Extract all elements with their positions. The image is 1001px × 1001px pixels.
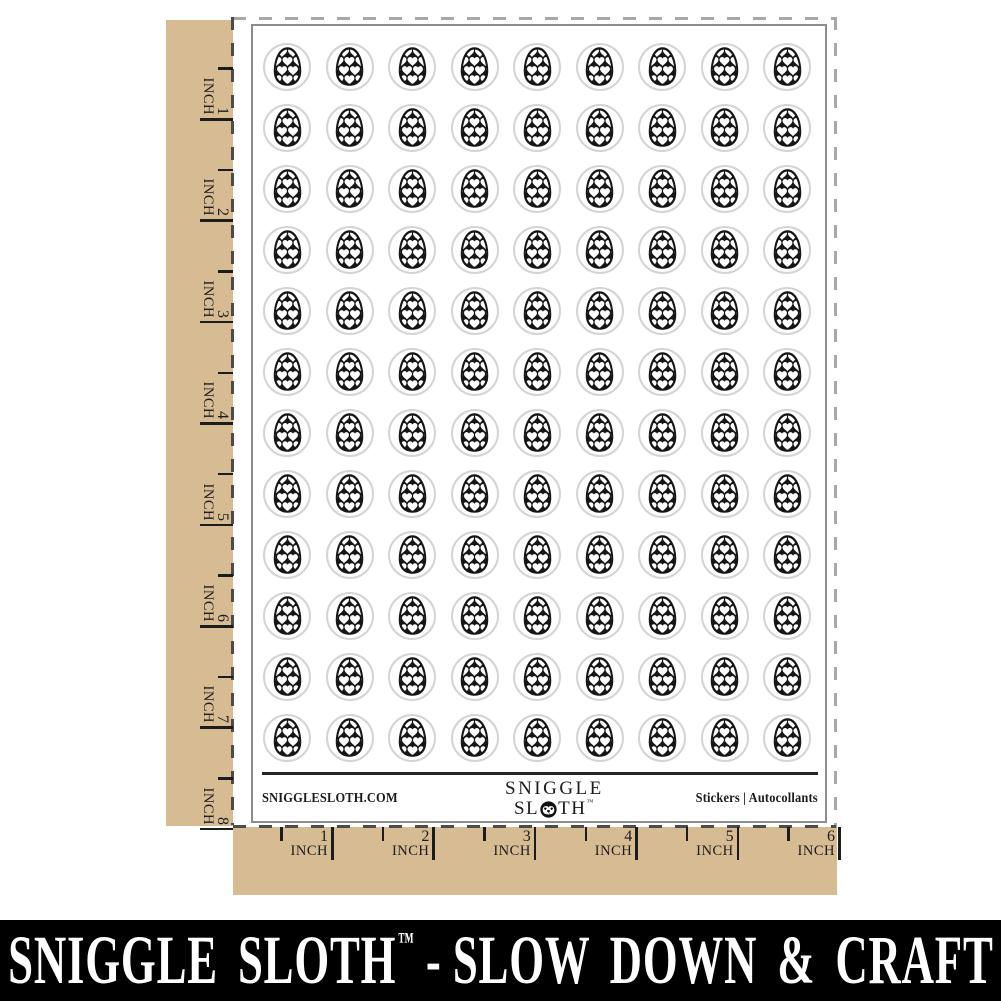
sticker xyxy=(263,470,311,518)
easter-egg-hearts-icon xyxy=(396,107,429,148)
sticker-sheet: SNIGGLESLOTH.COM SNIGGLE SL TH ™ xyxy=(251,24,827,823)
sticker xyxy=(326,43,374,91)
inch-label: 2INCH xyxy=(369,829,429,859)
easter-egg-hearts-icon xyxy=(271,534,304,575)
inch-label: 6INCH xyxy=(775,829,835,859)
easter-egg-hearts-icon xyxy=(646,168,679,209)
sticker xyxy=(451,714,499,762)
sticker xyxy=(451,653,499,701)
easter-egg-hearts-icon xyxy=(521,656,554,697)
sticker xyxy=(576,43,624,91)
sticker xyxy=(513,409,561,457)
easter-egg-hearts-icon xyxy=(521,290,554,331)
ruler-inch-tick xyxy=(200,118,233,121)
easter-egg-hearts-icon xyxy=(333,351,366,392)
inch-unit: INCH xyxy=(268,844,328,859)
easter-egg-hearts-icon xyxy=(771,229,804,270)
sticker xyxy=(638,409,686,457)
easter-egg-hearts-icon xyxy=(396,656,429,697)
inch-number: 4 xyxy=(215,363,230,419)
easter-egg-hearts-icon xyxy=(396,229,429,270)
easter-egg-hearts-icon xyxy=(458,717,491,758)
easter-egg-hearts-icon xyxy=(396,473,429,514)
sticker xyxy=(513,653,561,701)
sticker xyxy=(576,714,624,762)
sticker xyxy=(451,470,499,518)
easter-egg-hearts-icon xyxy=(458,473,491,514)
sticker xyxy=(263,714,311,762)
easter-egg-hearts-icon xyxy=(771,168,804,209)
banner-brand: SNIGGLE SLOTH xyxy=(8,923,396,999)
sticker xyxy=(763,470,811,518)
sticker xyxy=(701,43,749,91)
sticker xyxy=(763,531,811,579)
sticker xyxy=(763,226,811,274)
website-text: SNIGGLESLOTH.COM xyxy=(262,790,398,806)
sticker xyxy=(638,531,686,579)
sticker xyxy=(638,348,686,396)
sticker xyxy=(763,348,811,396)
sticker xyxy=(263,104,311,152)
easter-egg-hearts-icon xyxy=(583,656,616,697)
sticker xyxy=(326,287,374,335)
inch-label: 7INCH xyxy=(200,667,230,723)
sticker xyxy=(513,165,561,213)
sticker xyxy=(576,409,624,457)
sticker xyxy=(638,226,686,274)
sticker xyxy=(326,104,374,152)
easter-egg-hearts-icon xyxy=(771,595,804,636)
banner-trademark: ™ xyxy=(398,928,415,955)
banner-text: SNIGGLE SLOTH™-SLOW DOWN & CRAFT xyxy=(8,926,993,994)
sloth-face-icon xyxy=(540,801,557,818)
inch-label: 1INCH xyxy=(268,829,328,859)
easter-egg-hearts-icon xyxy=(646,412,679,453)
sticker xyxy=(638,653,686,701)
easter-egg-hearts-icon xyxy=(771,473,804,514)
easter-egg-hearts-icon xyxy=(708,412,741,453)
inch-number: 1 xyxy=(215,59,230,115)
sticker xyxy=(763,592,811,640)
easter-egg-hearts-icon xyxy=(771,290,804,331)
easter-egg-hearts-icon xyxy=(396,290,429,331)
sticker xyxy=(451,531,499,579)
sticker xyxy=(388,470,436,518)
logo-line2-post: TH xyxy=(558,799,586,818)
sticker xyxy=(326,226,374,274)
easter-egg-hearts-icon xyxy=(271,290,304,331)
sticker xyxy=(263,531,311,579)
sticker xyxy=(701,531,749,579)
easter-egg-hearts-icon xyxy=(333,656,366,697)
easter-egg-hearts-icon xyxy=(583,168,616,209)
easter-egg-hearts-icon xyxy=(771,46,804,87)
easter-egg-hearts-icon xyxy=(271,656,304,697)
sticker xyxy=(576,165,624,213)
sticker xyxy=(451,165,499,213)
easter-egg-hearts-icon xyxy=(521,473,554,514)
sticker xyxy=(576,592,624,640)
easter-egg-hearts-icon xyxy=(583,595,616,636)
ruler-inch-tick xyxy=(534,827,537,860)
sticker xyxy=(263,348,311,396)
sticker xyxy=(701,653,749,701)
easter-egg-hearts-icon xyxy=(396,534,429,575)
sticker xyxy=(451,226,499,274)
ruler-inch-tick xyxy=(737,827,740,860)
sticker xyxy=(576,348,624,396)
sticker xyxy=(576,531,624,579)
sticker xyxy=(576,226,624,274)
inch-number: 6 xyxy=(775,829,835,844)
easter-egg-hearts-icon xyxy=(521,107,554,148)
sticker xyxy=(388,531,436,579)
easter-egg-hearts-icon xyxy=(583,412,616,453)
inch-unit: INCH xyxy=(200,465,215,521)
sticker xyxy=(701,104,749,152)
sheet-footer: SNIGGLESLOTH.COM SNIGGLE SL TH ™ xyxy=(262,778,818,818)
inch-unit: INCH xyxy=(200,59,215,115)
sticker xyxy=(513,287,561,335)
sticker xyxy=(701,287,749,335)
sticker xyxy=(763,43,811,91)
easter-egg-hearts-icon xyxy=(458,168,491,209)
sticker-grid xyxy=(256,36,819,768)
easter-egg-hearts-icon xyxy=(708,46,741,87)
inch-label: 3INCH xyxy=(471,829,531,859)
easter-egg-hearts-icon xyxy=(271,351,304,392)
easter-egg-hearts-icon xyxy=(271,229,304,270)
sticker xyxy=(326,653,374,701)
easter-egg-hearts-icon xyxy=(708,534,741,575)
inch-unit: INCH xyxy=(200,160,215,216)
inch-number: 5 xyxy=(215,465,230,521)
easter-egg-hearts-icon xyxy=(333,107,366,148)
easter-egg-hearts-icon xyxy=(458,412,491,453)
sticker xyxy=(513,531,561,579)
easter-egg-hearts-icon xyxy=(396,351,429,392)
easter-egg-hearts-icon xyxy=(521,595,554,636)
sticker xyxy=(263,653,311,701)
easter-egg-hearts-icon xyxy=(583,473,616,514)
inch-number: 2 xyxy=(369,829,429,844)
easter-egg-hearts-icon xyxy=(333,290,366,331)
sticker xyxy=(326,165,374,213)
sticker xyxy=(638,43,686,91)
easter-egg-hearts-icon xyxy=(396,595,429,636)
sticker xyxy=(263,592,311,640)
easter-egg-hearts-icon xyxy=(458,351,491,392)
sticker xyxy=(701,348,749,396)
sticker xyxy=(701,470,749,518)
inch-label: 4INCH xyxy=(200,363,230,419)
logo-line2: SL TH ™ xyxy=(505,799,604,818)
sticker xyxy=(388,43,436,91)
stickers-label: Stickers | Autocollants xyxy=(696,790,818,806)
inch-unit: INCH xyxy=(369,844,429,859)
easter-egg-hearts-icon xyxy=(458,107,491,148)
easter-egg-hearts-icon xyxy=(583,290,616,331)
easter-egg-hearts-icon xyxy=(333,46,366,87)
inch-number: 4 xyxy=(572,829,632,844)
ruler-inch-tick xyxy=(200,726,233,729)
easter-egg-hearts-icon xyxy=(521,351,554,392)
inch-label: 3INCH xyxy=(200,262,230,318)
ruler-inch-tick xyxy=(331,827,334,860)
easter-egg-hearts-icon xyxy=(583,717,616,758)
sticker xyxy=(763,409,811,457)
easter-egg-hearts-icon xyxy=(458,534,491,575)
easter-egg-hearts-icon xyxy=(458,656,491,697)
easter-egg-hearts-icon xyxy=(333,595,366,636)
easter-egg-hearts-icon xyxy=(271,473,304,514)
cut-line-right xyxy=(834,17,837,828)
easter-egg-hearts-icon xyxy=(458,229,491,270)
sticker xyxy=(701,409,749,457)
footer-divider xyxy=(262,772,818,775)
banner-separator: - xyxy=(426,923,442,999)
cut-line-left xyxy=(231,17,234,825)
easter-egg-hearts-icon xyxy=(271,412,304,453)
ruler-inch-tick xyxy=(200,524,233,527)
sticker xyxy=(388,348,436,396)
easter-egg-hearts-icon xyxy=(521,534,554,575)
sticker xyxy=(576,287,624,335)
easter-egg-hearts-icon xyxy=(646,656,679,697)
inch-label: 8INCH xyxy=(200,769,230,825)
inch-label: 4INCH xyxy=(572,829,632,859)
sticker xyxy=(513,226,561,274)
easter-egg-hearts-icon xyxy=(708,290,741,331)
easter-egg-hearts-icon xyxy=(771,412,804,453)
inch-unit: INCH xyxy=(674,844,734,859)
inch-number: 6 xyxy=(215,566,230,622)
inch-number: 3 xyxy=(471,829,531,844)
easter-egg-hearts-icon xyxy=(771,717,804,758)
banner-tagline: SLOW DOWN & CRAFT xyxy=(452,923,993,999)
easter-egg-hearts-icon xyxy=(458,595,491,636)
easter-egg-hearts-icon xyxy=(646,717,679,758)
sticker xyxy=(701,714,749,762)
inch-number: 1 xyxy=(268,829,328,844)
sticker xyxy=(638,104,686,152)
sticker xyxy=(451,104,499,152)
inch-label: 6INCH xyxy=(200,566,230,622)
sticker xyxy=(388,287,436,335)
easter-egg-hearts-icon xyxy=(271,717,304,758)
sticker xyxy=(513,348,561,396)
ruler-inch-tick xyxy=(200,828,233,831)
easter-egg-hearts-icon xyxy=(333,717,366,758)
sticker xyxy=(263,287,311,335)
inch-label: 1INCH xyxy=(200,59,230,115)
sticker xyxy=(263,226,311,274)
easter-egg-hearts-icon xyxy=(646,534,679,575)
sticker xyxy=(451,592,499,640)
easter-egg-hearts-icon xyxy=(521,46,554,87)
easter-egg-hearts-icon xyxy=(521,717,554,758)
inch-label: 2INCH xyxy=(200,160,230,216)
inch-unit: INCH xyxy=(200,566,215,622)
easter-egg-hearts-icon xyxy=(583,107,616,148)
sticker xyxy=(638,165,686,213)
easter-egg-hearts-icon xyxy=(771,107,804,148)
logo-trademark: ™ xyxy=(586,799,594,806)
sticker xyxy=(576,653,624,701)
ruler-inch-tick xyxy=(432,827,435,860)
sticker xyxy=(701,226,749,274)
easter-egg-hearts-icon xyxy=(708,168,741,209)
inch-number: 5 xyxy=(674,829,734,844)
sticker xyxy=(513,714,561,762)
easter-egg-hearts-icon xyxy=(646,473,679,514)
sticker xyxy=(513,592,561,640)
brand-logo: SNIGGLE SL TH ™ xyxy=(505,779,604,818)
easter-egg-hearts-icon xyxy=(396,46,429,87)
easter-egg-hearts-icon xyxy=(396,412,429,453)
easter-egg-hearts-icon xyxy=(708,351,741,392)
easter-egg-hearts-icon xyxy=(708,229,741,270)
easter-egg-hearts-icon xyxy=(396,168,429,209)
inch-unit: INCH xyxy=(572,844,632,859)
sticker xyxy=(263,43,311,91)
inch-label: 5INCH xyxy=(200,465,230,521)
easter-egg-hearts-icon xyxy=(521,412,554,453)
inch-unit: INCH xyxy=(775,844,835,859)
sticker xyxy=(388,165,436,213)
easter-egg-hearts-icon xyxy=(771,351,804,392)
easter-egg-hearts-icon xyxy=(333,229,366,270)
easter-egg-hearts-icon xyxy=(333,412,366,453)
easter-egg-hearts-icon xyxy=(271,107,304,148)
sticker xyxy=(451,287,499,335)
ruler-inch-tick xyxy=(200,422,233,425)
easter-egg-hearts-icon xyxy=(583,534,616,575)
product-image: SNIGGLESLOTH.COM SNIGGLE SL TH ™ xyxy=(0,0,1001,1001)
sticker xyxy=(638,470,686,518)
cut-line-top xyxy=(233,17,836,20)
inch-unit: INCH xyxy=(471,844,531,859)
sticker xyxy=(388,714,436,762)
inch-number: 3 xyxy=(215,262,230,318)
ruler-inch-tick xyxy=(200,219,233,222)
easter-egg-hearts-icon xyxy=(583,46,616,87)
inch-unit: INCH xyxy=(200,363,215,419)
sticker xyxy=(388,226,436,274)
sticker xyxy=(388,653,436,701)
easter-egg-hearts-icon xyxy=(458,46,491,87)
easter-egg-hearts-icon xyxy=(583,229,616,270)
easter-egg-hearts-icon xyxy=(271,168,304,209)
easter-egg-hearts-icon xyxy=(333,168,366,209)
sticker xyxy=(763,104,811,152)
easter-egg-hearts-icon xyxy=(271,46,304,87)
inch-number: 2 xyxy=(215,160,230,216)
sticker xyxy=(388,409,436,457)
inch-number: 7 xyxy=(215,667,230,723)
sticker xyxy=(763,714,811,762)
easter-egg-hearts-icon xyxy=(521,229,554,270)
easter-egg-hearts-icon xyxy=(771,656,804,697)
easter-egg-hearts-icon xyxy=(646,229,679,270)
sticker xyxy=(701,592,749,640)
easter-egg-hearts-icon xyxy=(583,351,616,392)
easter-egg-hearts-icon xyxy=(333,534,366,575)
ruler-inch-tick xyxy=(838,827,841,860)
easter-egg-hearts-icon xyxy=(333,473,366,514)
easter-egg-hearts-icon xyxy=(771,534,804,575)
easter-egg-hearts-icon xyxy=(458,290,491,331)
easter-egg-hearts-icon xyxy=(708,717,741,758)
ruler-inch-tick xyxy=(200,321,233,324)
easter-egg-hearts-icon xyxy=(271,595,304,636)
sticker xyxy=(326,409,374,457)
easter-egg-hearts-icon xyxy=(646,46,679,87)
sticker xyxy=(388,592,436,640)
inch-unit: INCH xyxy=(200,667,215,723)
sticker xyxy=(638,592,686,640)
sticker xyxy=(513,470,561,518)
sticker xyxy=(638,714,686,762)
easter-egg-hearts-icon xyxy=(396,717,429,758)
easter-egg-hearts-icon xyxy=(708,656,741,697)
sticker xyxy=(326,592,374,640)
easter-egg-hearts-icon xyxy=(708,473,741,514)
sticker xyxy=(326,348,374,396)
easter-egg-hearts-icon xyxy=(646,290,679,331)
ruler-inch-tick xyxy=(200,625,233,628)
brand-banner: SNIGGLE SLOTH™-SLOW DOWN & CRAFT xyxy=(0,920,1001,1001)
easter-egg-hearts-icon xyxy=(521,168,554,209)
sticker xyxy=(576,104,624,152)
sticker xyxy=(451,348,499,396)
sticker xyxy=(326,714,374,762)
easter-egg-hearts-icon xyxy=(708,107,741,148)
sticker xyxy=(763,165,811,213)
sticker xyxy=(263,409,311,457)
sticker xyxy=(576,470,624,518)
easter-egg-hearts-icon xyxy=(708,595,741,636)
inch-unit: INCH xyxy=(200,769,215,825)
sticker xyxy=(513,43,561,91)
logo-line2-pre: SL xyxy=(514,799,539,818)
easter-egg-hearts-icon xyxy=(646,595,679,636)
sticker xyxy=(451,409,499,457)
easter-egg-hearts-icon xyxy=(646,351,679,392)
sticker xyxy=(451,43,499,91)
sticker xyxy=(388,104,436,152)
sticker xyxy=(763,287,811,335)
sticker xyxy=(638,287,686,335)
easter-egg-hearts-icon xyxy=(646,107,679,148)
sticker xyxy=(326,531,374,579)
sticker xyxy=(701,165,749,213)
inch-number: 8 xyxy=(215,769,230,825)
ruler-inch-tick xyxy=(635,827,638,860)
sticker xyxy=(513,104,561,152)
logo-line1: SNIGGLE xyxy=(505,779,604,798)
inch-unit: INCH xyxy=(200,262,215,318)
sticker xyxy=(263,165,311,213)
inch-label: 5INCH xyxy=(674,829,734,859)
sticker xyxy=(326,470,374,518)
sticker xyxy=(763,653,811,701)
